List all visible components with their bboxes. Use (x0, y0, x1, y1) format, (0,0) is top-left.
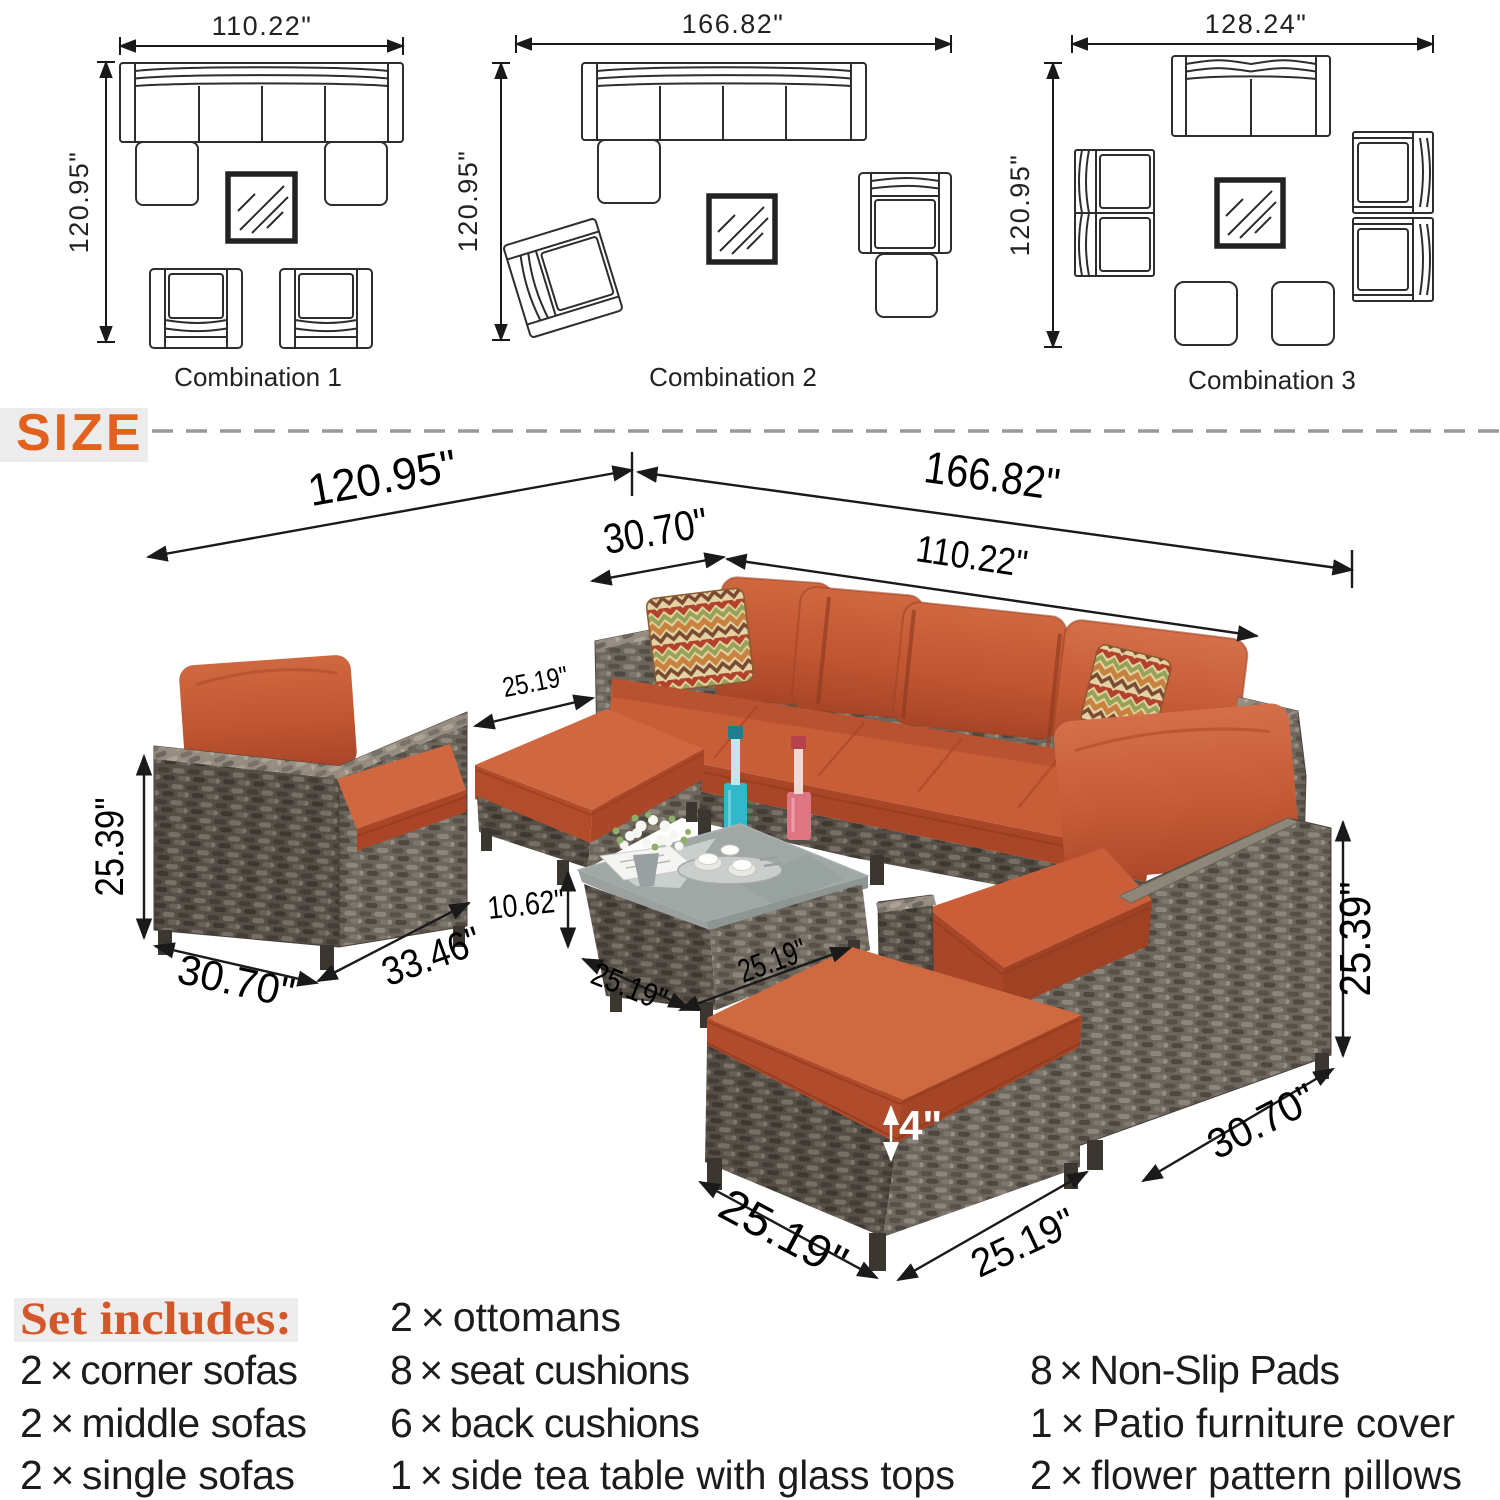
svg-text:8 × Non-Slip Pads: 8 × Non-Slip Pads (1030, 1347, 1340, 1393)
svg-text:2 × ottomans: 2 × ottomans (390, 1294, 621, 1340)
svg-text:8 × seat cushions: 8 × seat cushions (390, 1347, 690, 1393)
svg-text:2 × corner sofas: 2 × corner sofas (20, 1347, 298, 1393)
svg-text:4": 4" (899, 1102, 942, 1149)
svg-text:25.39": 25.39" (88, 798, 132, 897)
svg-text:SIZE: SIZE (16, 404, 144, 462)
svg-text:120.95": 120.95" (1005, 154, 1035, 257)
svg-text:2 × middle sofas: 2 × middle sofas (20, 1400, 307, 1446)
svg-text:166.82": 166.82" (682, 9, 785, 39)
svg-text:120.95": 120.95" (64, 151, 94, 254)
svg-text:Set includes:: Set includes: (20, 1293, 292, 1345)
svg-text:1 × Patio furniture cover: 1 × Patio furniture cover (1030, 1400, 1455, 1446)
svg-text:Combination 1: Combination 1 (174, 362, 342, 392)
svg-text:6 × back cushions: 6 × back cushions (390, 1400, 700, 1446)
svg-text:2 × flower pattern pillows: 2 × flower pattern pillows (1030, 1452, 1462, 1498)
svg-text:110.22": 110.22" (212, 11, 313, 41)
svg-text:2 × single sofas: 2 × single sofas (20, 1452, 295, 1498)
svg-text:120.95": 120.95" (453, 150, 483, 253)
svg-text:25.39": 25.39" (1331, 882, 1380, 997)
svg-text:Combination 2: Combination 2 (649, 362, 817, 392)
svg-text:128.24": 128.24" (1205, 9, 1308, 39)
svg-text:1 × side tea table with glass: 1 × side tea table with glass tops (390, 1452, 955, 1498)
svg-text:Combination 3: Combination 3 (1188, 365, 1356, 395)
